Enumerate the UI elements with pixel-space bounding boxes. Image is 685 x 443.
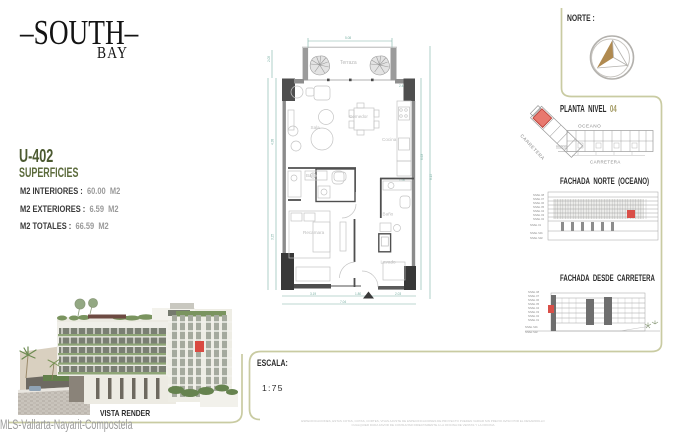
svg-text:NIVEL 06: NIVEL 06 bbox=[533, 201, 545, 205]
svg-text:Recamara: Recamara bbox=[303, 230, 325, 235]
svg-text:CARRETERA: CARRETERA bbox=[519, 133, 546, 161]
svg-text:ACCESO: ACCESO bbox=[556, 144, 567, 148]
svg-text:NIVEL S02: NIVEL S02 bbox=[525, 330, 538, 334]
svg-text:NIVEL S02: NIVEL S02 bbox=[530, 236, 543, 240]
svg-text:NIVEL 07: NIVEL 07 bbox=[533, 197, 545, 201]
svg-text:NIVEL 01: NIVEL 01 bbox=[530, 223, 542, 227]
svg-text:CARRETERA: CARRETERA bbox=[590, 160, 621, 165]
svg-text:OCEANO: OCEANO bbox=[578, 124, 601, 129]
svg-text:NIVEL 04: NIVEL 04 bbox=[528, 306, 540, 310]
svg-text:NIVEL 08: NIVEL 08 bbox=[533, 193, 545, 197]
svg-text:NIVEL 08: NIVEL 08 bbox=[528, 290, 540, 294]
svg-text:4.38: 4.38 bbox=[271, 139, 275, 145]
svg-text:Sala: Sala bbox=[311, 125, 321, 130]
svg-text:6.63: 6.63 bbox=[420, 154, 424, 160]
svg-text:NIVEL 01: NIVEL 01 bbox=[528, 318, 540, 322]
svg-text:NIVEL 02: NIVEL 02 bbox=[533, 217, 545, 221]
svg-text:2.03: 2.03 bbox=[395, 292, 401, 296]
svg-text:NIVEL 06: NIVEL 06 bbox=[528, 298, 540, 302]
svg-text:NIVEL 03: NIVEL 03 bbox=[528, 310, 540, 314]
svg-text:NIVEL 04: NIVEL 04 bbox=[533, 209, 545, 213]
svg-text:Cocina: Cocina bbox=[382, 137, 397, 142]
svg-text:NIVEL 03: NIVEL 03 bbox=[533, 213, 545, 217]
svg-text:Terraza: Terraza bbox=[340, 60, 357, 66]
svg-text:3.19: 3.19 bbox=[310, 292, 316, 296]
svg-text:NIVEL 05: NIVEL 05 bbox=[528, 302, 540, 306]
svg-text:NIVEL S01: NIVEL S01 bbox=[530, 231, 543, 235]
svg-text:Comedor: Comedor bbox=[349, 114, 368, 119]
svg-text:7.04: 7.04 bbox=[340, 300, 346, 304]
svg-text:NIVEL 05: NIVEL 05 bbox=[533, 205, 545, 209]
svg-text:Lavado: Lavado bbox=[381, 260, 397, 265]
svg-text:1.80: 1.80 bbox=[355, 292, 361, 296]
svg-text:Baño: Baño bbox=[306, 173, 317, 178]
svg-text:NIVEL 02: NIVEL 02 bbox=[528, 314, 540, 318]
svg-text:3.25: 3.25 bbox=[271, 234, 275, 240]
svg-text:Baño: Baño bbox=[383, 212, 394, 217]
svg-text:5.08: 5.08 bbox=[345, 36, 351, 40]
svg-text:8.15: 8.15 bbox=[429, 174, 433, 180]
svg-text:NIVEL 07: NIVEL 07 bbox=[528, 294, 540, 298]
svg-text:NIVEL S01: NIVEL S01 bbox=[525, 325, 538, 329]
svg-text:2.05: 2.05 bbox=[267, 56, 271, 62]
